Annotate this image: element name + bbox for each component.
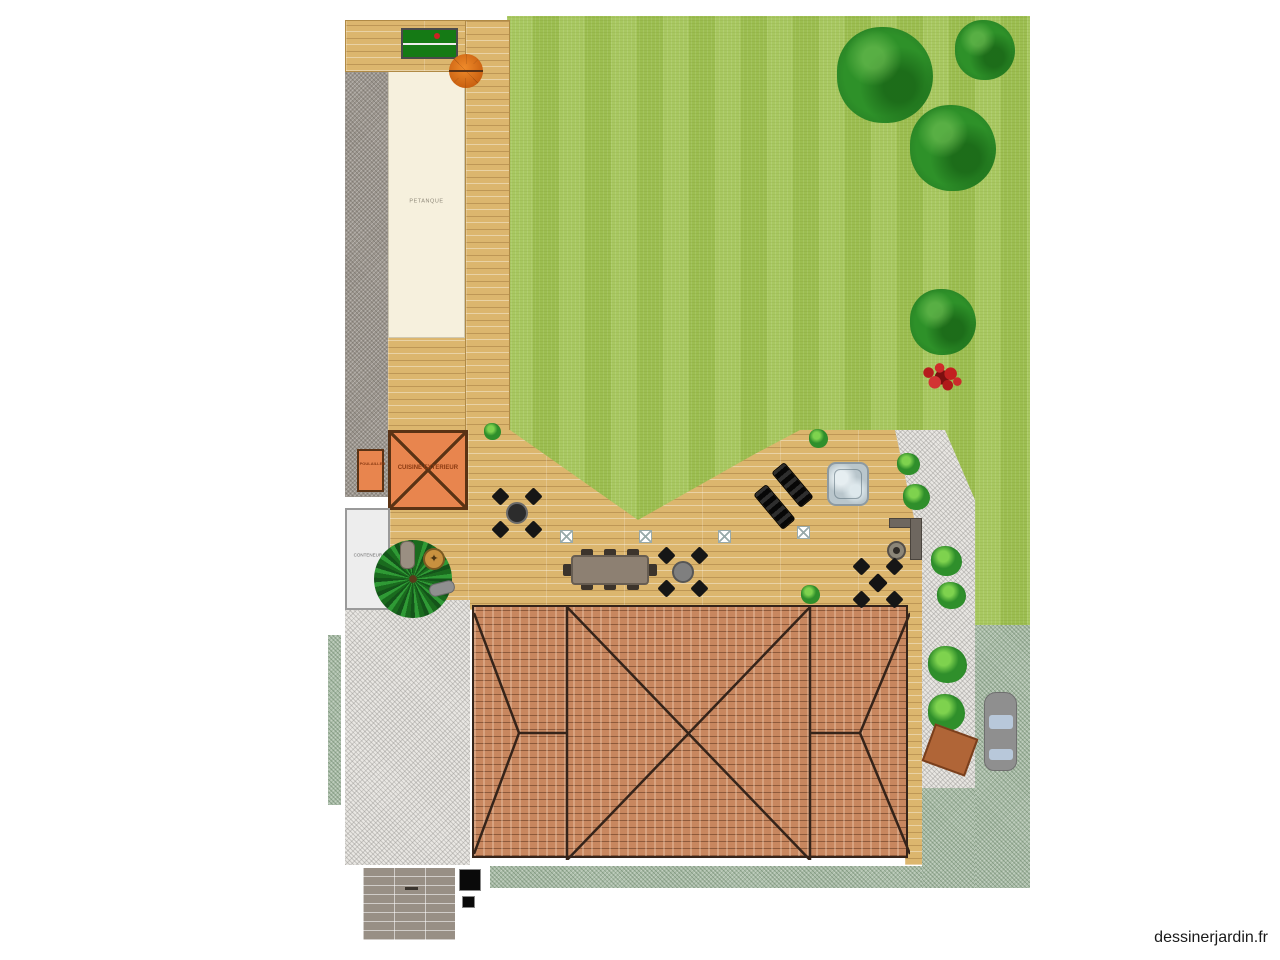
- barrel-icon[interactable]: [400, 541, 415, 569]
- square-bistro-set[interactable]: [855, 560, 901, 606]
- deck-spotlight-icon[interactable]: [718, 530, 731, 543]
- green-strip-left[interactable]: [328, 635, 341, 805]
- roof-ridge-lines: [474, 607, 910, 860]
- petanque-label: PETANQUE: [388, 198, 465, 204]
- driveway-bottom-strip[interactable]: [490, 866, 930, 888]
- chair-icon: [648, 564, 657, 576]
- chair-icon: [690, 579, 708, 597]
- fire-pit-icon[interactable]: [887, 541, 906, 560]
- bistro-set[interactable]: [494, 490, 540, 536]
- paving-mark: [405, 887, 418, 890]
- jacuzzi[interactable]: [827, 462, 869, 506]
- tree-icon[interactable]: [837, 27, 933, 123]
- chair-icon: [885, 590, 903, 608]
- deck-below-petanque[interactable]: [388, 338, 465, 432]
- shrub-icon[interactable]: [937, 582, 966, 609]
- garden-plan-canvas: PETANQUE CUISINE EXTERIEUR POULAILLER CO…: [0, 0, 1280, 960]
- shrub-icon[interactable]: [897, 453, 920, 475]
- chair-icon: [657, 546, 675, 564]
- white-gravel-left[interactable]: [345, 600, 470, 865]
- tree-icon[interactable]: [910, 289, 976, 355]
- dining-set[interactable]: [571, 549, 649, 589]
- black-storage-box-small[interactable]: [462, 896, 475, 908]
- chicken-coop[interactable]: [357, 449, 384, 492]
- table-icon: [868, 573, 888, 593]
- driveway-corner[interactable]: [922, 788, 975, 888]
- chair-icon: [690, 546, 708, 564]
- watermark: dessinerjardin.fr: [1154, 929, 1268, 947]
- shrub-icon[interactable]: [903, 484, 930, 510]
- coop-label: POULAILLER: [359, 462, 386, 466]
- deck-spotlight-icon[interactable]: [560, 530, 573, 543]
- chair-icon: [885, 557, 903, 575]
- chair-icon: [852, 590, 870, 608]
- deck-spotlight-icon[interactable]: [797, 526, 810, 539]
- round-table-set[interactable]: [660, 549, 706, 595]
- table-icon: [506, 502, 528, 524]
- tree-icon[interactable]: [955, 20, 1015, 80]
- chair-icon: [657, 579, 675, 597]
- gray-gravel-path[interactable]: [345, 72, 388, 497]
- chair-icon: [524, 487, 542, 505]
- paddle-icon: [434, 33, 440, 39]
- shrub-icon[interactable]: [484, 423, 501, 440]
- car-icon[interactable]: [984, 692, 1017, 771]
- table-icon: [571, 555, 649, 585]
- deck-spotlight-icon[interactable]: [639, 530, 652, 543]
- shrub-icon[interactable]: [801, 585, 820, 604]
- chair-icon: [524, 520, 542, 538]
- table-tennis-table[interactable]: [401, 28, 458, 59]
- parasol-icon[interactable]: [449, 54, 483, 88]
- shrub-icon[interactable]: [928, 646, 967, 683]
- black-storage-box-large[interactable]: [459, 869, 481, 891]
- chair-icon: [491, 520, 509, 538]
- house-roof[interactable]: [472, 605, 908, 858]
- chair-icon: [852, 557, 870, 575]
- paving-square[interactable]: [363, 868, 455, 940]
- shrub-icon[interactable]: [809, 429, 828, 448]
- petanque-court[interactable]: [388, 55, 465, 338]
- outdoor-counter[interactable]: [910, 518, 922, 560]
- shrub-icon[interactable]: [931, 546, 962, 576]
- brasero-icon[interactable]: ✦: [423, 548, 445, 570]
- outdoor-kitchen-label: CUISINE EXTERIEUR: [388, 464, 468, 471]
- red-flower-bed[interactable]: [918, 360, 966, 396]
- tree-icon[interactable]: [910, 105, 996, 191]
- chair-icon: [491, 487, 509, 505]
- table-icon: [672, 561, 694, 583]
